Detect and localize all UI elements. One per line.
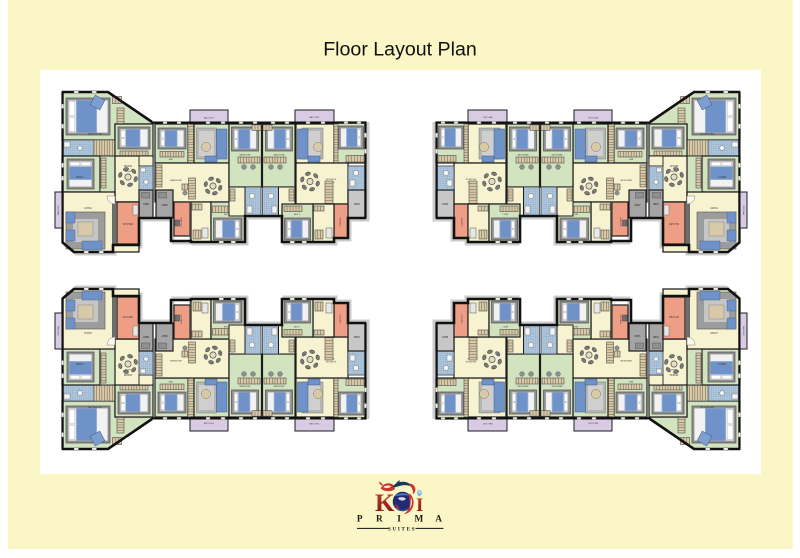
svg-text:WARDROBE: WARDROBE xyxy=(239,154,251,157)
svg-text:I: I xyxy=(416,495,423,516)
svg-text:BALCONY: BALCONY xyxy=(204,117,215,120)
svg-text:BALCONY: BALCONY xyxy=(57,205,60,215)
svg-text:KITCHEN: KITCHEN xyxy=(181,217,183,227)
svg-text:LIVING: LIVING xyxy=(84,207,92,210)
svg-text:BED 2: BED 2 xyxy=(76,175,84,179)
svg-text:KITCHEN: KITCHEN xyxy=(123,224,133,226)
svg-text:BED 1: BED 1 xyxy=(294,214,301,216)
svg-text:WARDROBE: WARDROBE xyxy=(170,179,182,182)
svg-text:YARD: YARD xyxy=(161,204,168,207)
svg-text:GRAY: GRAY xyxy=(354,203,361,206)
svg-text:I: I xyxy=(397,514,401,524)
svg-text:MASTERS WD: MASTERS WD xyxy=(88,133,103,136)
svg-text:R: R xyxy=(376,514,383,524)
svg-text:Floor Layout Plan: Floor Layout Plan xyxy=(323,39,477,61)
svg-text:KITCHEN: KITCHEN xyxy=(340,217,342,226)
svg-text:VESTIBULE: VESTIBULE xyxy=(326,179,337,181)
svg-text:YARD: YARD xyxy=(143,203,150,206)
svg-text:K: K xyxy=(375,490,395,517)
svg-text:DINING: DINING xyxy=(124,165,133,168)
svg-text:BALCONY: BALCONY xyxy=(310,116,321,119)
svg-text:BED: BED xyxy=(169,159,174,161)
svg-text:A: A xyxy=(435,514,442,524)
svg-text:P: P xyxy=(357,514,363,524)
svg-text:WARDROBE: WARDROBE xyxy=(273,154,285,157)
svg-text:M: M xyxy=(415,514,424,524)
svg-text:SUITES: SUITES xyxy=(388,526,416,532)
